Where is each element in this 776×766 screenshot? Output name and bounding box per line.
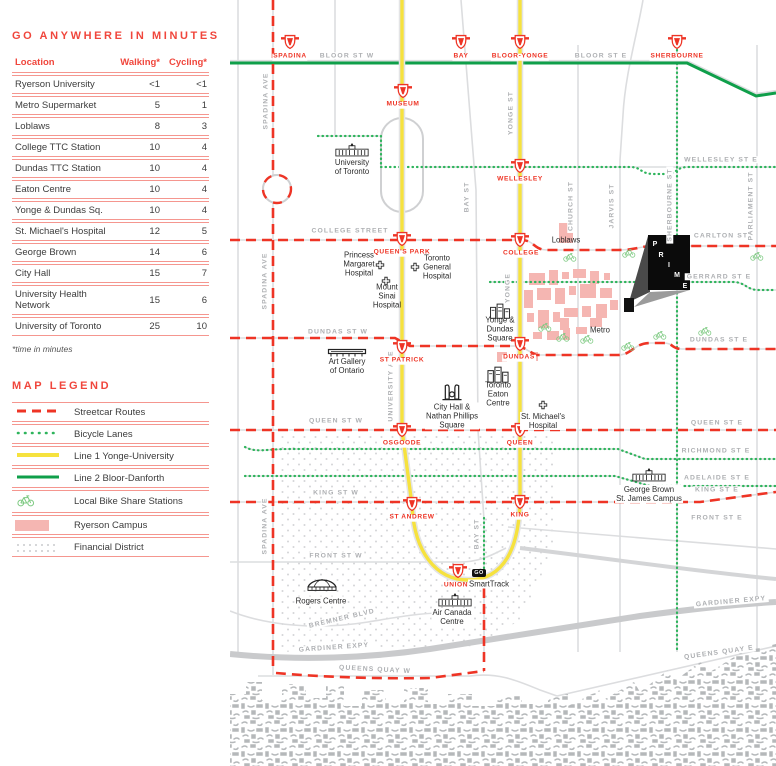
- cell-walking: 10: [115, 201, 162, 220]
- prime-letter: P: [653, 241, 658, 248]
- sidebar-title: GO ANYWHERE IN MINUTES: [12, 30, 230, 42]
- cell-location: Metro Supermarket: [12, 96, 115, 115]
- table-row: Dundas TTC Station104: [12, 159, 209, 178]
- cell-cycling: 1: [162, 96, 209, 115]
- eaton-centre-icon: [488, 367, 508, 382]
- table-footnote: *time in minutes: [12, 344, 230, 354]
- table-row: Loblaws83: [12, 117, 209, 136]
- travel-times-table: Location Walking* Cycling* Ryerson Unive…: [12, 52, 209, 338]
- cell-location: St. Michael's Hospital: [12, 222, 115, 241]
- legend-label: Financial District: [71, 537, 209, 557]
- cell-cycling: 6: [162, 285, 209, 315]
- table-row: City Hall157: [12, 264, 209, 283]
- map-legend: Streetcar Routes Bicycle Lanes Line 1 Yo…: [12, 400, 209, 559]
- cell-location: College TTC Station: [12, 138, 115, 157]
- streetcar-swatch-icon: [15, 407, 61, 415]
- cell-walking: 10: [115, 159, 162, 178]
- cell-location: Yonge & Dundas Sq.: [12, 201, 115, 220]
- station-spadina-icon: [281, 36, 299, 49]
- table-row: University Health Network156: [12, 285, 209, 315]
- cell-walking: 12: [115, 222, 162, 241]
- cell-location: University of Toronto: [12, 317, 115, 336]
- cell-walking: 25: [115, 317, 162, 336]
- station-museum-icon: [394, 85, 412, 98]
- table-row: Ryerson University<1<1: [12, 75, 209, 94]
- station-wellesley-icon: [511, 160, 529, 173]
- legend-item: Local Bike Share Stations: [12, 490, 209, 513]
- cell-location: Eaton Centre: [12, 180, 115, 199]
- cell-walking: 15: [115, 264, 162, 283]
- cell-walking: 10: [115, 138, 162, 157]
- bike-lane-swatch-icon: [15, 429, 61, 437]
- cell-cycling: 4: [162, 180, 209, 199]
- rail-corridor: [520, 548, 776, 579]
- st-michaels-cross-icon: [539, 401, 547, 409]
- prime-letter: E: [683, 283, 688, 290]
- cell-location: Dundas TTC Station: [12, 159, 115, 178]
- col-header-cycling: Cycling*: [162, 54, 209, 73]
- legend-label: Streetcar Routes: [71, 402, 209, 422]
- cell-walking: 5: [115, 96, 162, 115]
- cell-walking: 14: [115, 243, 162, 262]
- cell-cycling: 7: [162, 264, 209, 283]
- legend-title: MAP LEGEND: [12, 380, 230, 392]
- table-row: Yonge & Dundas Sq.104: [12, 201, 209, 220]
- cell-location: University Health Network: [12, 285, 115, 315]
- university-of-toronto-icon: [336, 142, 368, 156]
- legend-label: Ryerson Campus: [71, 515, 209, 535]
- station-dundas-icon: [511, 338, 529, 351]
- line2-bloor-danforth: [230, 63, 776, 96]
- george-brown-icon: [633, 467, 665, 481]
- prime-letter: M: [674, 272, 680, 279]
- col-header-location: Location: [12, 54, 115, 73]
- cell-cycling: 5: [162, 222, 209, 241]
- yonge-dundas-square-icon: [491, 304, 510, 318]
- legend-item: Line 2 Bloor-Danforth: [12, 468, 209, 488]
- cell-location: George Brown: [12, 243, 115, 262]
- prime-letter: R: [658, 252, 663, 259]
- table-header-row: Location Walking* Cycling*: [12, 54, 209, 73]
- legend-label: Local Bike Share Stations: [71, 490, 209, 513]
- legend-label: Line 1 Yonge-University: [71, 446, 209, 466]
- legend-item: Line 1 Yonge-University: [12, 446, 209, 466]
- cell-walking: 15: [115, 285, 162, 315]
- cell-cycling: 3: [162, 117, 209, 136]
- table-row: George Brown146: [12, 243, 209, 262]
- table-row: Metro Supermarket51: [12, 96, 209, 115]
- financial-district-swatch: [15, 542, 57, 553]
- legend-item: Streetcar Routes: [12, 402, 209, 422]
- sidebar: GO ANYWHERE IN MINUTES Location Walking*…: [0, 0, 230, 766]
- legend-item: Ryerson Campus: [12, 515, 209, 535]
- line2-swatch-icon: [15, 473, 61, 481]
- cell-cycling: 4: [162, 159, 209, 178]
- station-bay-icon: [452, 36, 470, 49]
- ryerson-campus-swatch: [15, 520, 49, 531]
- transit-map-infographic: P R I M E BLOOR: [0, 0, 776, 766]
- station-bloor-yonge-icon: [511, 36, 529, 49]
- table-row: Eaton Centre104: [12, 180, 209, 199]
- line1-swatch-icon: [15, 451, 61, 459]
- lake-ontario-water: [230, 644, 776, 766]
- bike-share-swatch-icon: [15, 493, 61, 507]
- station-st-patrick-icon: [393, 341, 411, 354]
- legend-item: Financial District: [12, 537, 209, 557]
- legend-label: Bicycle Lanes: [71, 424, 209, 444]
- col-header-walking: Walking*: [115, 54, 162, 73]
- cell-cycling: 10: [162, 317, 209, 336]
- cell-walking: 8: [115, 117, 162, 136]
- cell-cycling: <1: [162, 75, 209, 94]
- mount-sinai-cross-icon: [382, 277, 390, 285]
- table-row: St. Michael's Hospital125: [12, 222, 209, 241]
- cell-location: Ryerson University: [12, 75, 115, 94]
- station-sherbourne-icon: [668, 36, 686, 49]
- cell-location: City Hall: [12, 264, 115, 283]
- cell-walking: 10: [115, 180, 162, 199]
- legend-item: Bicycle Lanes: [12, 424, 209, 444]
- princess-margaret-cross-icon: [376, 261, 384, 269]
- prime-letter: I: [668, 262, 670, 269]
- cell-cycling: 6: [162, 243, 209, 262]
- cell-walking: <1: [115, 75, 162, 94]
- city-hall-icon: [442, 385, 461, 400]
- cell-location: Loblaws: [12, 117, 115, 136]
- cell-cycling: 4: [162, 138, 209, 157]
- table-row: College TTC Station104: [12, 138, 209, 157]
- prime-logo: P R I M E: [624, 235, 690, 312]
- toronto-general-cross-icon: [411, 263, 419, 271]
- legend-label: Line 2 Bloor-Danforth: [71, 468, 209, 488]
- cell-cycling: 4: [162, 201, 209, 220]
- art-gallery-of-ontario-icon: [329, 350, 366, 357]
- table-row: University of Toronto2510: [12, 317, 209, 336]
